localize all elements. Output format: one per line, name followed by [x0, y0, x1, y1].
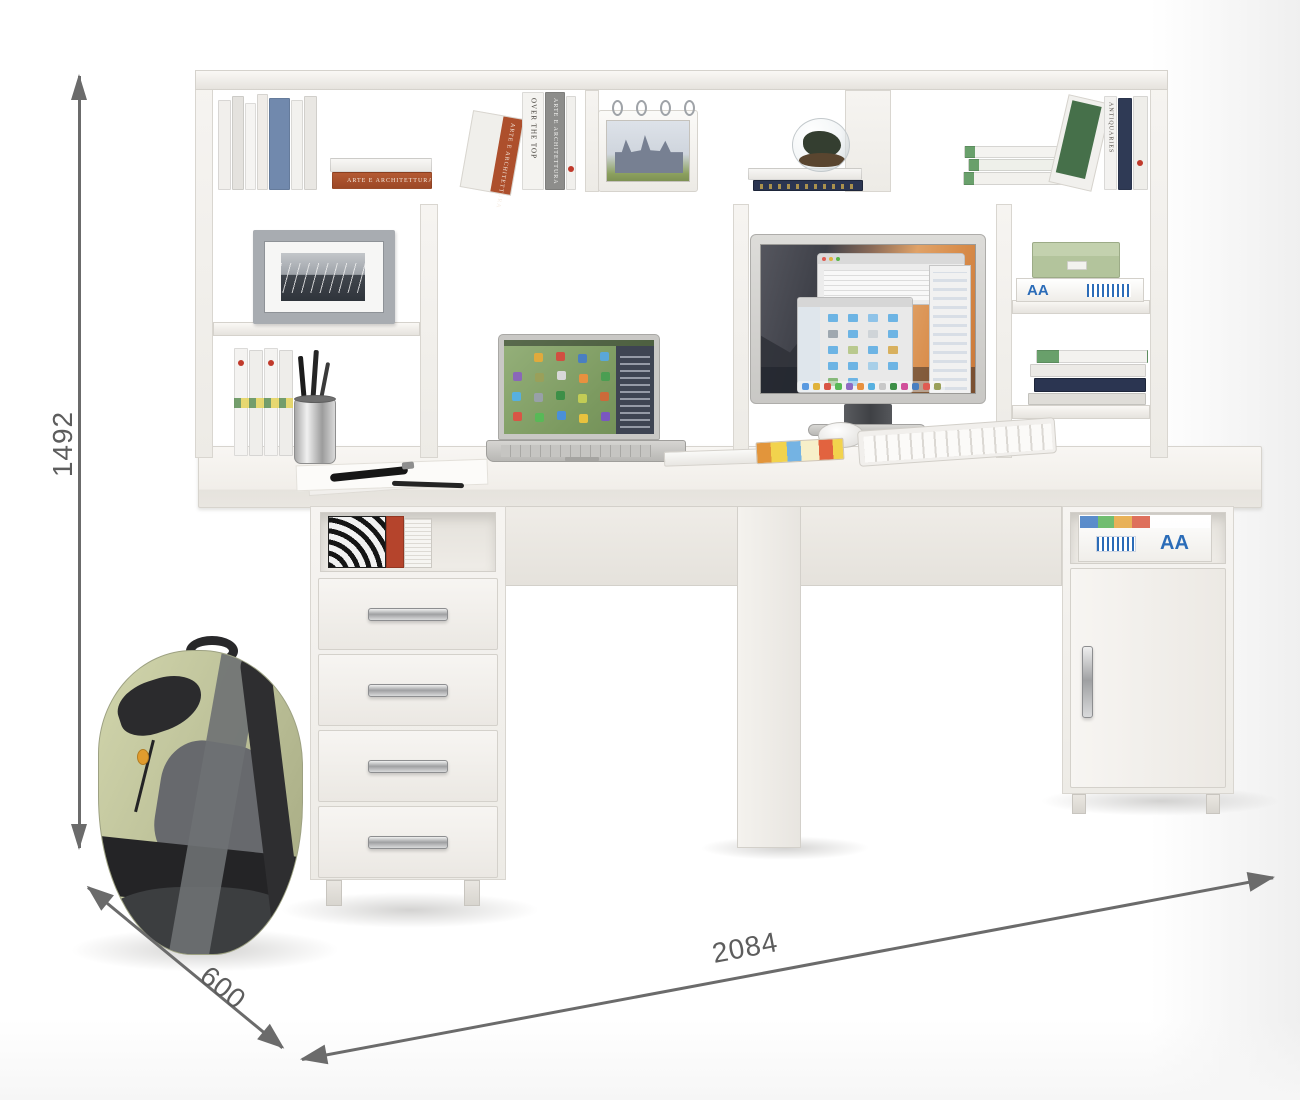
laptop-sidebar-rows	[620, 352, 650, 428]
hutch-left-wall	[195, 70, 213, 458]
book-spine-antiquaries: ANTIQUARIES	[1104, 96, 1117, 190]
picture-frame	[253, 230, 395, 324]
paper-box-aa-label: AA	[1027, 282, 1049, 299]
stacked-book	[1030, 364, 1146, 377]
side-panel-rows	[933, 272, 967, 390]
calendar-ring	[660, 100, 671, 116]
stacked-book-navy	[1034, 378, 1146, 392]
book-spine	[291, 100, 303, 190]
stacked-book	[1036, 350, 1148, 363]
right-pedestal-foot-right	[1206, 794, 1220, 814]
hutch-top-board	[195, 70, 1168, 90]
stacked-book	[1028, 393, 1146, 405]
drawer-2-handle[interactable]	[368, 684, 448, 697]
book-spine	[245, 103, 256, 190]
finder-toolbar	[798, 298, 912, 307]
calendar-ring	[636, 100, 647, 116]
book-spine	[1133, 96, 1148, 190]
bridge-photo	[281, 253, 365, 301]
pen-cup-rim	[294, 395, 336, 403]
finder-sidebar	[798, 307, 820, 392]
hutch-lower-divider-center	[733, 204, 749, 458]
finder-file-icons[interactable]	[828, 314, 838, 322]
zebra-book-pages	[404, 518, 432, 568]
hutch-right-wall	[1150, 70, 1168, 458]
hutch-right-shelf-upper	[1012, 300, 1150, 314]
desk-center-leg	[737, 506, 801, 848]
leaning-book-green	[1048, 94, 1111, 192]
book-spine-navy	[1118, 98, 1132, 190]
marker-cap-tip	[402, 461, 415, 469]
book-logo-dot	[568, 166, 574, 172]
book-spine	[566, 96, 576, 190]
castle-silhouette	[615, 135, 683, 173]
laptop-keyboard-keys[interactable]	[501, 445, 651, 457]
binder-band	[234, 398, 293, 408]
green-storage-box	[1032, 242, 1120, 278]
bridge-cables	[281, 263, 365, 293]
cabinet-door[interactable]	[1070, 568, 1226, 788]
dock[interactable]	[797, 381, 945, 392]
book-logo-dot	[1137, 160, 1143, 166]
laptop-display	[504, 340, 654, 434]
laptop-app-icons[interactable]	[512, 352, 521, 361]
background-wash-bottom	[0, 1020, 1300, 1100]
window-toolbar	[818, 254, 964, 264]
pen-cup	[294, 398, 336, 464]
magazine-colorful	[755, 438, 844, 465]
dimension-label-height: 1492	[47, 389, 79, 499]
dock-icons	[802, 383, 809, 390]
gray-book-title: ARTE E ARCHITETTURA	[552, 98, 558, 185]
calendar-ring	[612, 100, 623, 116]
window-finder[interactable]	[797, 297, 913, 393]
left-pedestal-foot-right	[464, 880, 480, 906]
hutch-left-shelf	[213, 322, 420, 336]
stacked-book-white	[330, 158, 432, 172]
navy-book-ornament	[760, 184, 856, 189]
green-box-label	[1067, 261, 1087, 270]
binder-logo-dot	[268, 360, 274, 366]
drawer-3-handle[interactable]	[368, 760, 448, 773]
dimension-label-width: 2084	[710, 926, 781, 970]
antiquaries-title: ANTIQUARIES	[1108, 102, 1114, 153]
book-spine	[218, 100, 231, 190]
book-spine-blue	[269, 98, 290, 190]
book-spine-over-the-top: OVER THE TOP	[522, 92, 544, 190]
green-cover-photo	[1056, 100, 1102, 179]
product-photo-desk-with-dimensions: AA ARTE E ARCHITETTURA ARTE E ARCHITETTU…	[0, 0, 1300, 1100]
arrowhead-down-icon	[71, 824, 87, 850]
laptop-screen	[498, 334, 660, 440]
backpack	[98, 640, 303, 958]
paper-box-barcode	[1087, 284, 1131, 297]
monitor-display	[760, 244, 976, 394]
book-spine	[257, 94, 268, 190]
left-pedestal-foot-left	[326, 880, 342, 906]
right-pedestal-foot-left	[1072, 794, 1086, 814]
arrowhead-up-icon	[71, 74, 87, 100]
terrarium-book-white	[748, 168, 862, 180]
terrarium-soil	[799, 153, 845, 167]
paper-ream-box-top-design	[1080, 516, 1210, 528]
book-spine	[232, 96, 244, 190]
hutch-right-shelf-lower	[1012, 405, 1150, 419]
stacked-book-red-title: ARTE E ARCHITETTURA	[347, 178, 431, 184]
window-side-panel[interactable]	[929, 265, 971, 394]
stacked-book-red: ARTE E ARCHITETTURA	[332, 172, 432, 189]
backpack-top-flap	[111, 667, 209, 743]
traffic-light-dots[interactable]	[822, 257, 826, 261]
paper-ream-box-label: AA	[1160, 532, 1189, 555]
laptop-trackpad[interactable]	[565, 457, 599, 461]
binder-logo-dot	[238, 360, 244, 366]
book-spine-gray: ARTE E ARCHITETTURA	[545, 92, 565, 190]
leaning-book-arte: ARTE E ARCHITETTURA	[460, 110, 525, 196]
laptop-base	[486, 440, 686, 462]
calendar-ring	[684, 100, 695, 116]
monitor	[750, 234, 986, 404]
hutch-lower-divider-left	[420, 204, 438, 458]
leaning-book-red-band: ARTE E ARCHITETTURA	[490, 116, 523, 194]
glass-terrarium-bowl	[792, 118, 850, 172]
cabinet-door-handle[interactable]	[1082, 646, 1093, 718]
terrarium-book-navy	[753, 180, 863, 191]
over-the-top-title: OVER THE TOP	[530, 98, 537, 159]
paper-ream-barcode	[1096, 536, 1136, 552]
zebra-book-red-spine	[386, 516, 404, 568]
leaning-book-title: ARTE E ARCHITETTURA	[495, 123, 516, 209]
zebra-pattern-book	[328, 516, 386, 568]
backpack-toggle	[137, 749, 149, 765]
shadow-left-pedestal	[280, 892, 540, 928]
hutch-top-divider-a	[585, 90, 599, 192]
drawer-1-handle[interactable]	[368, 608, 448, 621]
backpack-body	[98, 650, 303, 955]
paper-box-aa: AA	[1016, 278, 1144, 302]
calendar-castle-photo	[606, 120, 690, 182]
book-spine	[304, 96, 317, 190]
drawer-4-handle[interactable]	[368, 836, 448, 849]
